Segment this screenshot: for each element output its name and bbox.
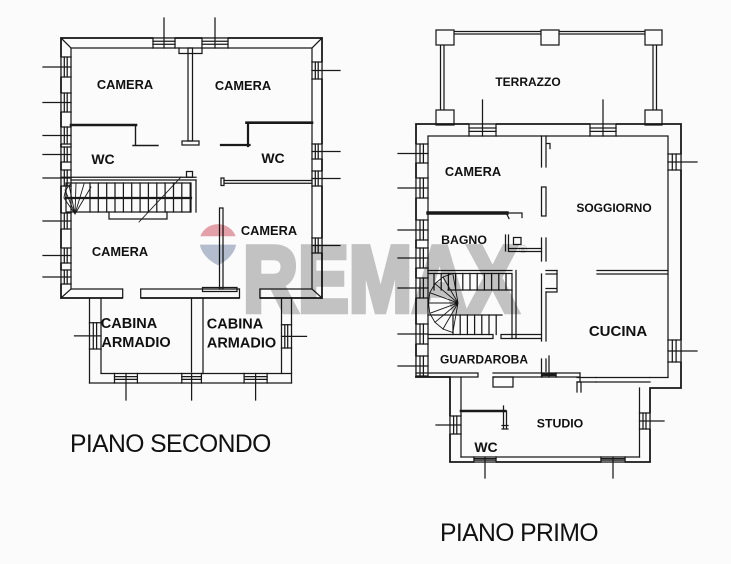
svg-text:REMAX: REMAX [243, 228, 518, 332]
svg-text:®: ® [519, 244, 527, 256]
